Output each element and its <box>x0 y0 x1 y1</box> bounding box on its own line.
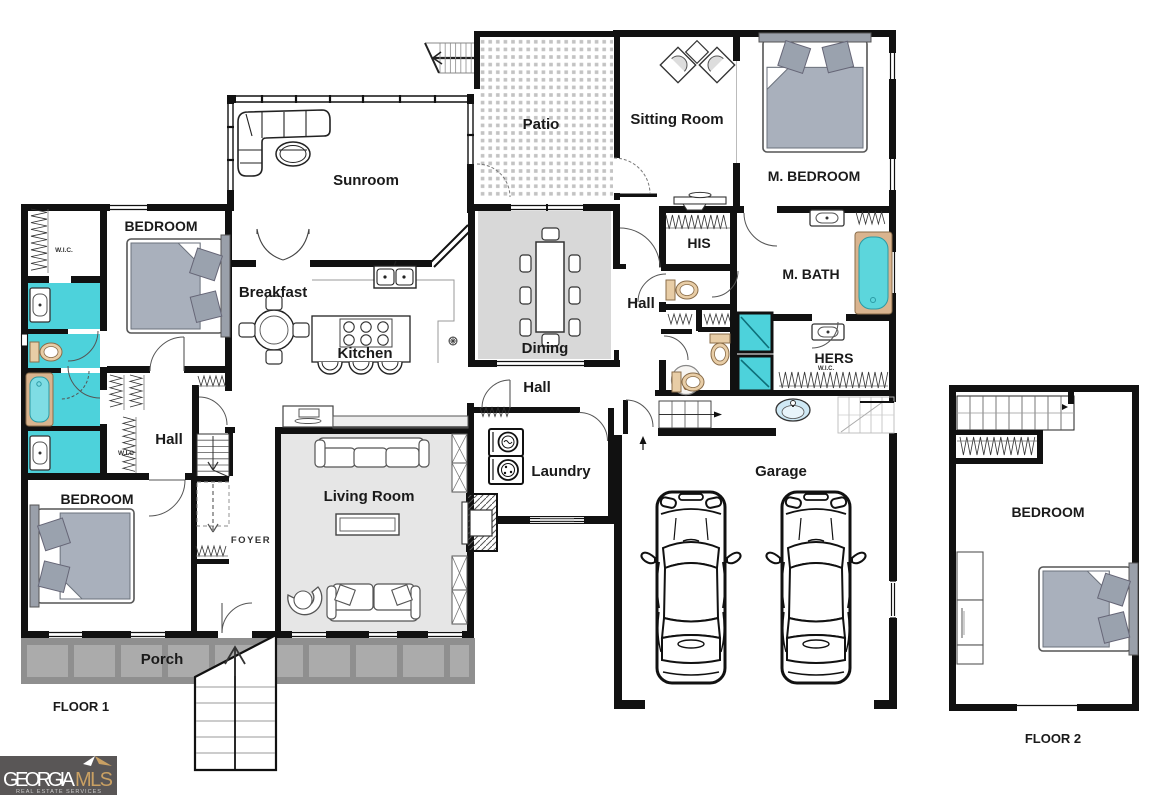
svg-text:FOYER: FOYER <box>231 535 271 546</box>
svg-text:Hall: Hall <box>627 295 655 312</box>
svg-text:Dining: Dining <box>522 340 569 357</box>
svg-text:W.I.C.: W.I.C. <box>818 366 835 372</box>
svg-text:Hall: Hall <box>523 379 551 396</box>
svg-text:Sunroom: Sunroom <box>333 172 399 189</box>
svg-text:Hall: Hall <box>155 431 183 448</box>
svg-text:GEORGIA: GEORGIA <box>3 769 76 791</box>
svg-text:Breakfast: Breakfast <box>239 284 307 301</box>
svg-text:MLS: MLS <box>75 769 113 791</box>
svg-text:FLOOR 2: FLOOR 2 <box>1025 731 1081 746</box>
svg-text:BEDROOM: BEDROOM <box>60 491 133 507</box>
svg-text:Laundry: Laundry <box>531 463 591 480</box>
svg-text:REAL ESTATE SERVICES: REAL ESTATE SERVICES <box>16 789 102 795</box>
svg-text:W.I.C: W.I.C <box>118 450 134 457</box>
svg-text:M. BEDROOM: M. BEDROOM <box>768 168 861 184</box>
svg-text:Garage: Garage <box>755 463 807 480</box>
svg-text:Porch: Porch <box>141 651 184 668</box>
svg-text:HIS: HIS <box>687 235 710 251</box>
svg-text:Living Room: Living Room <box>324 488 415 505</box>
svg-text:M. BATH: M. BATH <box>782 266 839 282</box>
svg-text:HERS: HERS <box>815 350 854 366</box>
svg-text:Patio: Patio <box>523 116 560 133</box>
svg-text:BEDROOM: BEDROOM <box>124 218 197 234</box>
svg-text:BEDROOM: BEDROOM <box>1011 504 1084 520</box>
svg-text:W.I.C.: W.I.C. <box>55 247 73 254</box>
svg-text:Sitting Room: Sitting Room <box>630 111 723 128</box>
svg-text:Kitchen: Kitchen <box>337 345 392 362</box>
svg-text:FLOOR 1: FLOOR 1 <box>53 699 109 714</box>
